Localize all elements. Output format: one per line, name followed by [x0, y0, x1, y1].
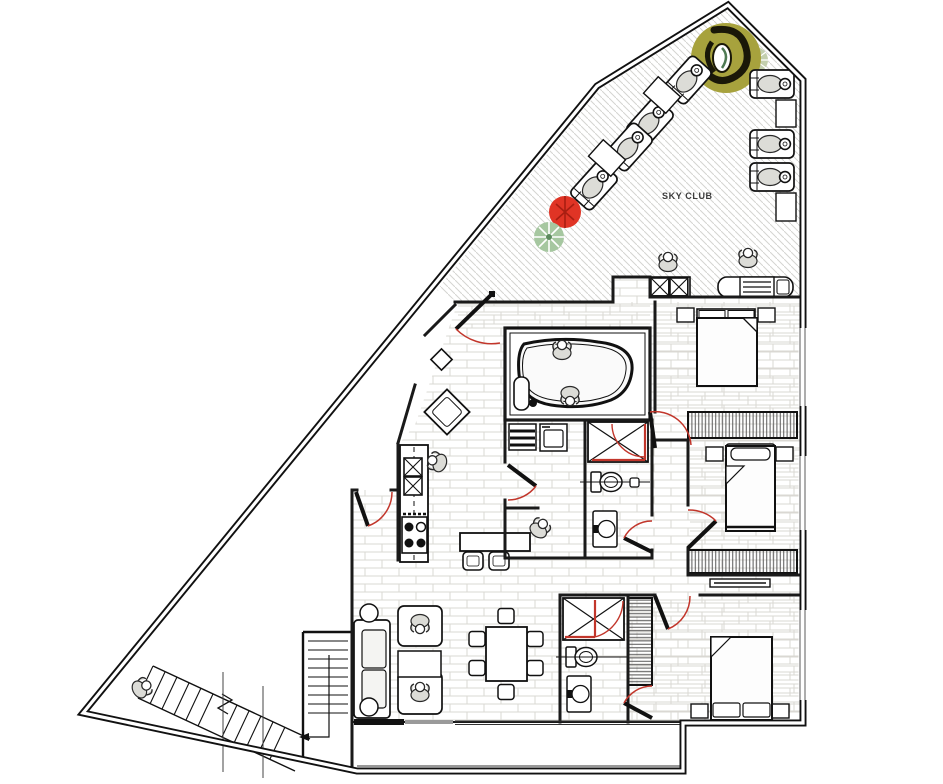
wardrobe [628, 598, 652, 685]
stair-arrow [309, 655, 329, 737]
kitchen-island [460, 533, 530, 551]
lounge-chair [750, 70, 794, 98]
dining-chair [498, 609, 514, 624]
floor-plan: SKY CLUB [0, 0, 943, 784]
jacuzzi-room [505, 328, 650, 420]
washing-machine-icon [540, 424, 567, 451]
side-table-round [360, 698, 378, 716]
dining-chair [469, 661, 485, 676]
dining-table [486, 627, 527, 681]
living-room [354, 604, 442, 718]
wardrobe [688, 550, 797, 573]
wardrobe [688, 412, 797, 438]
side-table [776, 193, 796, 221]
dining-chair [527, 632, 543, 647]
floor-plan-page: SKY CLUB [0, 0, 943, 784]
kitchen-sink [404, 458, 422, 495]
green-plant-icon [534, 222, 564, 252]
side-table-round [360, 604, 378, 622]
stove-icon [402, 514, 427, 553]
person-icon [553, 340, 571, 359]
shower [563, 598, 624, 640]
person-icon [739, 248, 757, 267]
jacuzzi-drain [529, 399, 537, 407]
lounge-chair [750, 163, 794, 191]
person-icon [659, 252, 677, 271]
windows [799, 328, 808, 700]
washbasin-icon [593, 511, 617, 547]
nightstand [677, 308, 694, 322]
nightstand [772, 704, 789, 718]
jacuzzi-bench [514, 377, 529, 410]
bed [697, 309, 757, 386]
person-icon [561, 387, 579, 406]
shower [588, 422, 648, 462]
nightstand [706, 447, 723, 461]
toilet-flush [630, 478, 639, 487]
nightstand [758, 308, 775, 322]
armchair [398, 672, 442, 714]
armchair [398, 606, 442, 646]
coffee-table [398, 651, 441, 677]
dining-chair [527, 661, 543, 676]
outdoor-sink [650, 277, 690, 297]
dining-chair [469, 632, 485, 647]
bbq-grill [718, 277, 793, 297]
bar-stool [463, 552, 483, 570]
bed [711, 637, 772, 720]
sky-club-label: SKY CLUB [662, 191, 713, 201]
dining-chair [498, 685, 514, 700]
washbasin-icon [567, 676, 591, 712]
nightstand [691, 704, 708, 718]
stairs [129, 632, 352, 778]
walkway-floor [458, 302, 650, 328]
side-table [776, 100, 796, 127]
balcony [352, 724, 683, 770]
bed [726, 444, 775, 531]
person-icon [129, 675, 155, 700]
lounge-chair [750, 130, 794, 158]
shelving [509, 424, 536, 450]
nightstand [776, 447, 793, 461]
